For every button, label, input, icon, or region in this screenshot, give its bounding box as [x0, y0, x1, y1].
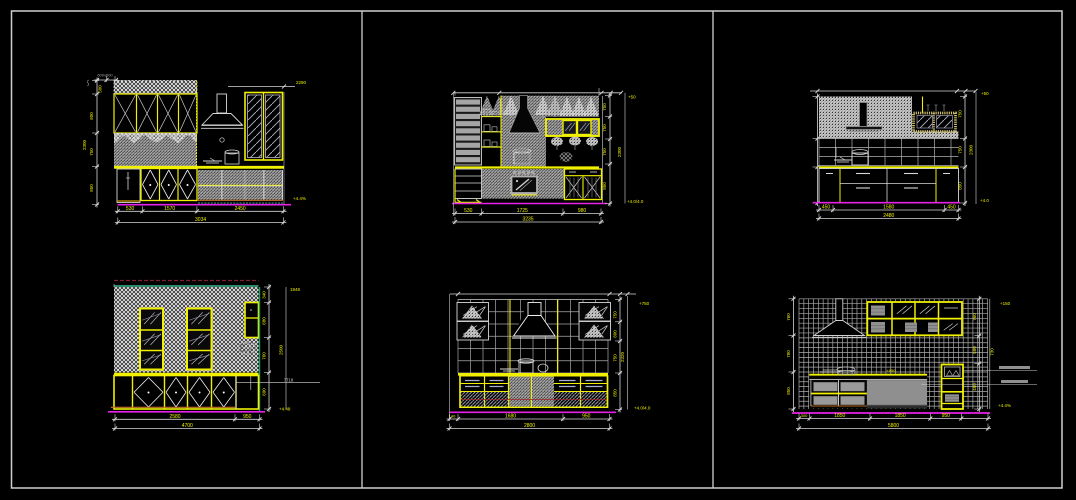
svg-text:850: 850 [958, 182, 963, 190]
svg-text:2320: 2320 [620, 351, 625, 362]
svg-text:680: 680 [262, 317, 267, 325]
svg-text:+4.4%: +4.4% [293, 196, 306, 201]
svg-text:2300: 2300 [82, 139, 87, 150]
svg-text:3034: 3034 [195, 217, 206, 223]
svg-text:600x600: 600x600 [97, 73, 113, 78]
svg-text:5800: 5800 [888, 423, 899, 429]
svg-text:4700: 4700 [182, 423, 193, 429]
svg-text:2300: 2300 [617, 146, 622, 157]
svg-text:2450: 2450 [235, 206, 246, 212]
svg-text:850: 850 [613, 389, 618, 397]
svg-text:530: 530 [126, 206, 135, 212]
svg-text:850: 850 [89, 184, 94, 192]
svg-text:1850: 1850 [834, 413, 845, 419]
svg-text:1580: 1580 [883, 205, 894, 211]
svg-text:3235: 3235 [522, 217, 533, 223]
svg-text:+4.0/4.0: +4.0/4.0 [627, 199, 644, 204]
svg-text:+50: +50 [981, 91, 989, 96]
svg-text:7718: 7718 [284, 377, 294, 382]
svg-text:750: 750 [602, 103, 607, 111]
svg-text:2800: 2800 [524, 423, 535, 429]
svg-text:450: 450 [947, 205, 956, 211]
svg-text:+4.48: +4.48 [279, 407, 291, 412]
svg-text:+850: +850 [886, 368, 896, 373]
svg-text:580: 580 [972, 346, 977, 354]
svg-text:750: 750 [613, 311, 618, 319]
svg-text:730: 730 [989, 348, 994, 356]
svg-text:690: 690 [262, 388, 267, 396]
svg-text:750: 750 [958, 110, 963, 118]
svg-text:300: 300 [801, 413, 808, 418]
svg-text:+50: +50 [628, 95, 636, 100]
svg-text:1850: 1850 [895, 413, 906, 419]
svg-text:450: 450 [972, 383, 977, 391]
svg-text:340: 340 [262, 291, 267, 299]
svg-text:780: 780 [786, 350, 791, 358]
svg-text:1570: 1570 [164, 206, 175, 212]
svg-text:950: 950 [942, 413, 951, 419]
svg-text:750: 750 [602, 124, 607, 132]
svg-text:850: 850 [786, 387, 791, 395]
svg-text:750: 750 [613, 354, 618, 362]
svg-text:2500: 2500 [279, 344, 284, 355]
svg-text:2580: 2580 [169, 414, 180, 420]
svg-text:760: 760 [786, 313, 791, 321]
svg-text:1948: 1948 [290, 287, 301, 292]
svg-text:1680: 1680 [505, 414, 516, 420]
svg-text:+4.0: +4.0 [980, 198, 989, 203]
svg-text:450: 450 [822, 205, 831, 211]
svg-text:2480: 2480 [883, 213, 894, 219]
svg-text:1725: 1725 [517, 208, 528, 214]
svg-text:760: 760 [972, 313, 977, 321]
svg-text:760: 760 [262, 352, 267, 360]
svg-text:530: 530 [464, 208, 473, 214]
svg-text:500: 500 [98, 85, 103, 93]
svg-text:+750: +750 [639, 301, 650, 306]
svg-text:+4.0/4.0: +4.0/4.0 [634, 406, 651, 411]
svg-text:600: 600 [613, 330, 618, 338]
svg-text:750: 750 [602, 148, 607, 156]
svg-text:+150: +150 [1000, 301, 1011, 306]
svg-text:2290: 2290 [296, 80, 307, 85]
svg-text:600: 600 [89, 112, 94, 120]
svg-text:750: 750 [89, 148, 94, 156]
svg-text:2300: 2300 [969, 144, 974, 155]
svg-text:850: 850 [602, 182, 607, 190]
svg-text:950: 950 [243, 414, 252, 420]
svg-text:750: 750 [958, 146, 963, 154]
svg-text:+4.4%: +4.4% [998, 403, 1011, 408]
svg-text:980: 980 [578, 208, 587, 214]
svg-text:950: 950 [582, 414, 591, 420]
